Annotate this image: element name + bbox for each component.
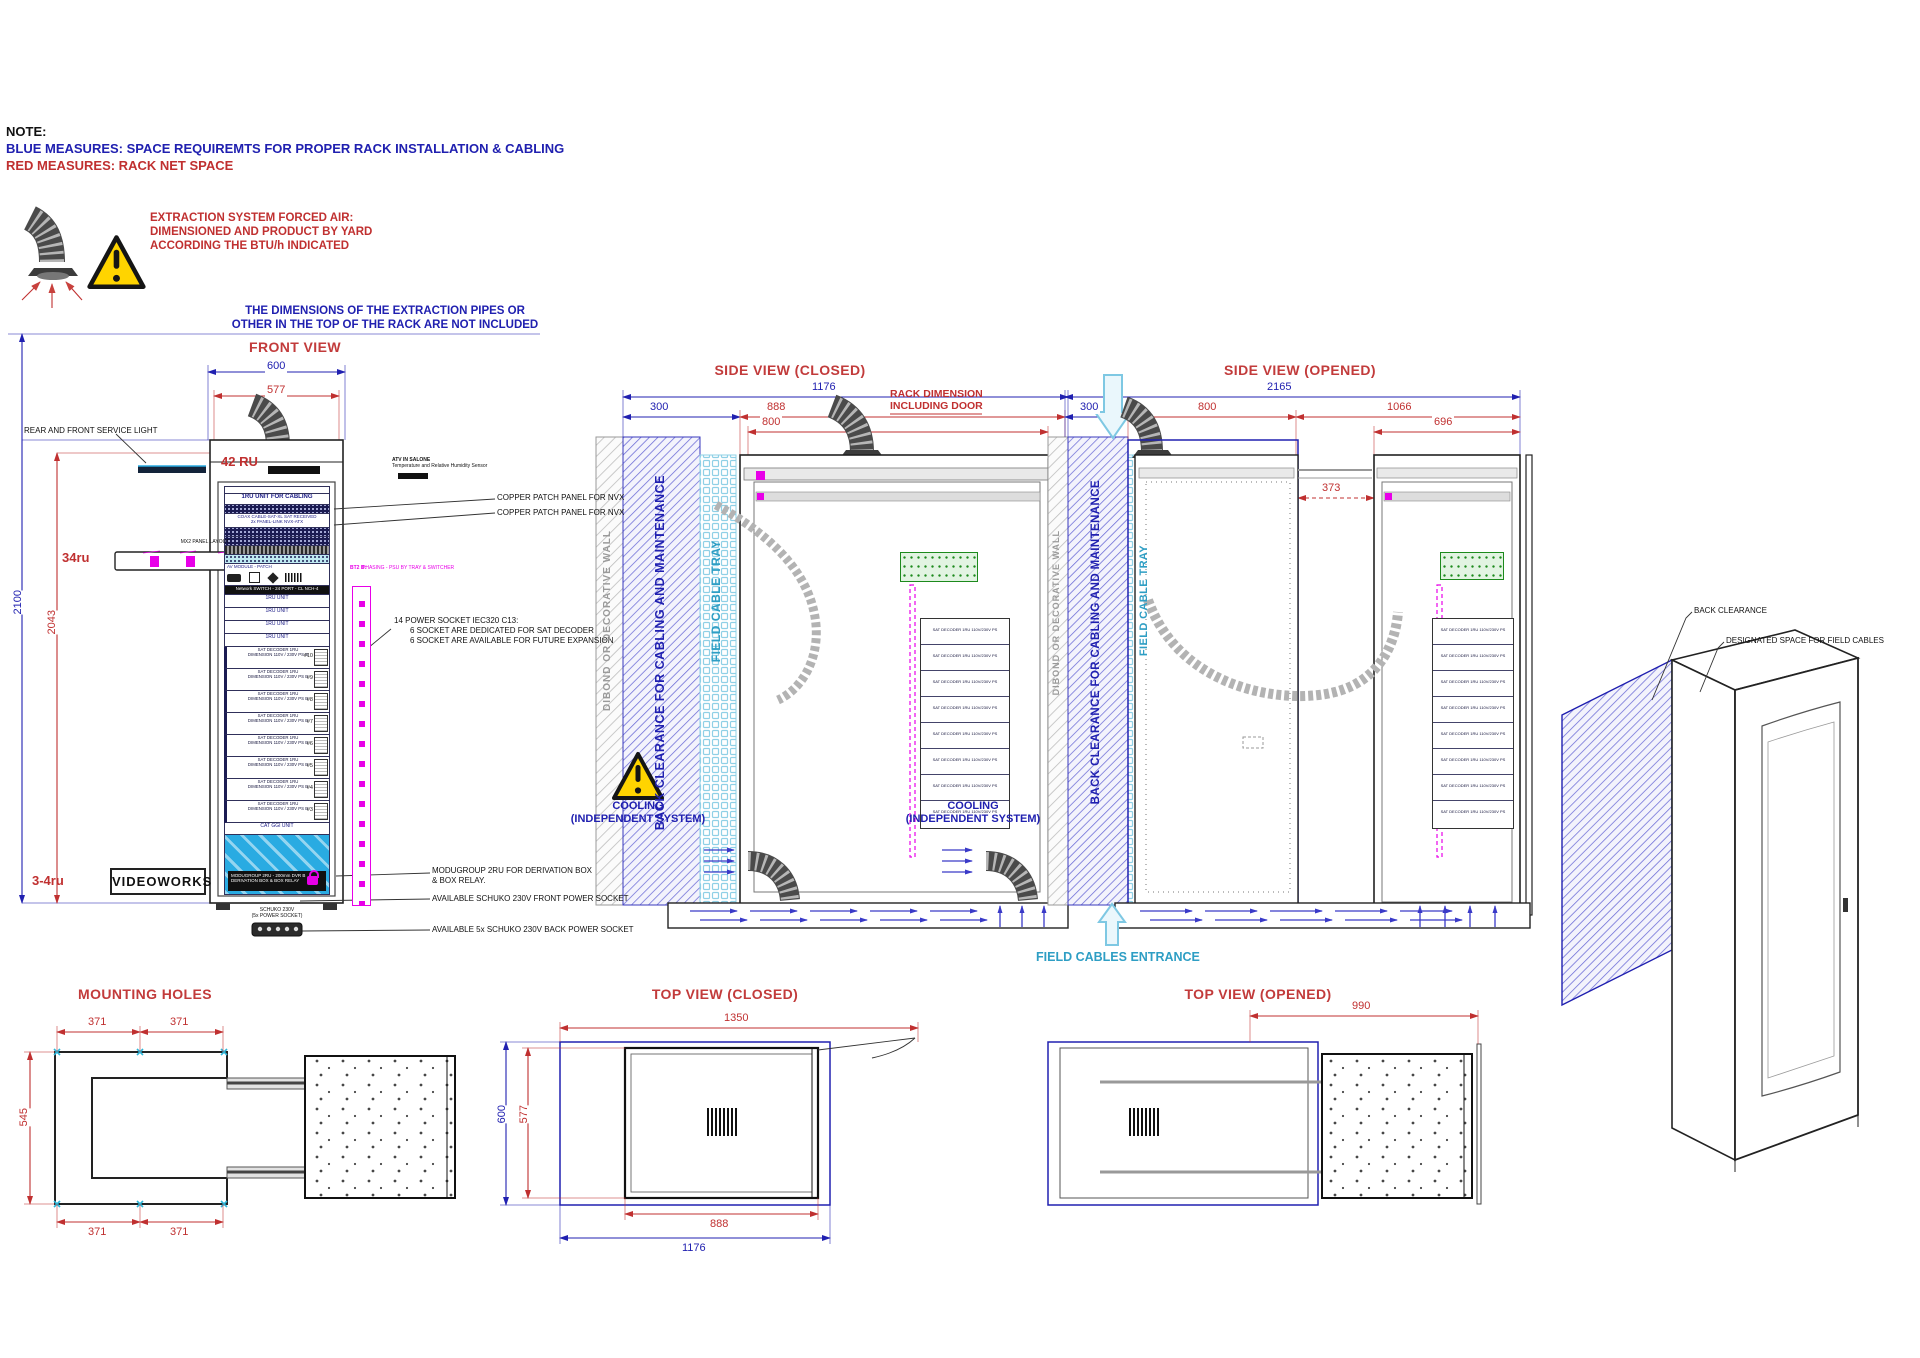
rack-row-patch-panel: [224, 528, 330, 537]
iso-designated-space-label: DESIGNATED SPACE FOR FIELD CABLES: [1726, 636, 1884, 645]
rack-row-coax-label: COAX CABLE-SAT-XL SAT RECEIVED 2x PANEL-…: [224, 514, 330, 528]
rack-row-switch: Network SWITCH - 24 PORT - CL NCH-4: [224, 586, 330, 595]
decoder-side-box: [314, 759, 328, 776]
decoder-side-box: [314, 781, 328, 798]
front-ru34-label: 34ru: [62, 551, 89, 566]
side-closed-wall-label: DIBOND OR DECORATIVE WALL: [602, 530, 614, 711]
front-rack-interior: 1RU UNIT FOR CABLING COAX CABLE-SAT-XL S…: [224, 486, 330, 895]
top-opened-dim-990: 990: [1350, 1000, 1372, 1013]
field-cables-entrance-label: FIELD CABLES ENTRANCE: [1036, 950, 1200, 964]
mounting-dim-371-top-right: 371: [168, 1016, 190, 1029]
decoder-side-box: [314, 671, 328, 688]
side-closed-green-module: [900, 552, 978, 582]
top-closed-dim-888: 888: [708, 1218, 730, 1231]
lock-icon: [307, 876, 318, 885]
top-closed-dim-1350: 1350: [722, 1012, 750, 1025]
rack-dimension-note-line1: RACK DIMENSION: [890, 388, 983, 400]
top-closed-dim-1176: 1176: [680, 1242, 708, 1255]
power-socket-callout-line2: 6 SOCKET ARE DEDICATED FOR SAT DECODER: [410, 626, 594, 635]
note-blue-measures: BLUE MEASURES: SPACE REQUIREMTS FOR PROP…: [6, 142, 564, 157]
rack-row-sat-decoder: SAT DECODER 1RUDIMENSION 110V / 230V PS …: [224, 801, 330, 823]
decoder-side-box: [314, 693, 328, 710]
mounting-holes-title: MOUNTING HOLES: [60, 986, 230, 1002]
copper-patch-callout-1: COPPER PATCH PANEL FOR NVX: [497, 493, 624, 502]
rack-blank-row: [224, 486, 330, 494]
front-dim-2043: 2043: [44, 610, 61, 634]
rack-row-sat-decoder: SAT DECODER 1RUDIMENSION 110V / 230V PS …: [224, 735, 330, 757]
decoder-side-box: [314, 649, 328, 666]
rack-row-1ru: 1RU UNIT: [224, 634, 330, 647]
side-closed-dim-800: 800: [760, 416, 782, 429]
strip-label-line2: (5x POWER SOCKET): [240, 914, 314, 920]
front-ru42-label: 42 RU: [221, 455, 258, 470]
rack-row-vent-grille: [224, 546, 330, 555]
decoder-side-box: [314, 803, 328, 820]
side-opened-cooling-label2: (INDEPENDENT SYSTEM): [900, 813, 1046, 826]
side-opened-tray-label: FIELD CABLE TRAY: [1138, 545, 1151, 656]
mounting-dim-371-top-left: 371: [86, 1016, 108, 1029]
top-opened-graphics: [1048, 1010, 1481, 1205]
side-opened-dim-696: 696: [1432, 416, 1454, 429]
top-closed-graphics: [500, 1022, 918, 1244]
front-socket-callout: AVAILABLE SCHUKO 230V FRONT POWER SOCKET: [432, 894, 629, 903]
side-opened-title: SIDE VIEW (OPENED): [1210, 362, 1390, 378]
side-opened-cooling-label1: COOLING: [925, 800, 1021, 813]
side-closed-dim-888: 888: [765, 401, 787, 414]
rack-row-1ru: 1RU UNIT: [224, 595, 330, 608]
side-opened-dim-373: 373: [1320, 482, 1342, 495]
copper-patch-callout-2: COPPER PATCH PANEL FOR NVX: [497, 508, 624, 517]
front-dim-600: 600: [265, 360, 287, 373]
side-closed-dim-1176: 1176: [810, 381, 838, 394]
modugroup-box: MODUGROUP 2RU - 200mm DVR B DERIVATION B…: [228, 871, 326, 891]
mounting-dim-371-bottom-left: 371: [86, 1226, 108, 1239]
note-title: NOTE:: [6, 125, 46, 140]
rack-row-designated-panel: MODUGROUP 2RU - 200mm DVR B DERIVATION B…: [224, 835, 330, 895]
modugroup-callout-line1: MODUGROUP 2RU FOR DERIVATION BOX: [432, 866, 592, 875]
top-opened-title: TOP VIEW (OPENED): [1178, 986, 1338, 1002]
modugroup-callout-line2: & BOX RELAY.: [432, 876, 486, 885]
pipes-note-line2: OTHER IN THE TOP OF THE RACK ARE NOT INC…: [205, 319, 565, 332]
decoder-side-box: [314, 737, 328, 754]
rack-row-sat-decoder: SAT DECODER 1RUDIMENSION 110V / 230V PS …: [224, 779, 330, 801]
top-closed-dim-600: 600: [494, 1105, 511, 1123]
decoder-side-box: [314, 715, 328, 732]
warning-icon: [90, 237, 144, 286]
rack-row-patch-panel: [224, 505, 330, 514]
rack-row-sat-decoder: SAT DECODER 1RUDIMENSION 110V / 230V PS …: [224, 691, 330, 713]
back-socket-callout: AVAILABLE 5x SCHUKO 230V BACK POWER SOCK…: [432, 925, 634, 934]
rack-row-cat-unit: CAT GGI UNIT: [224, 823, 330, 835]
extraction-note-line1: EXTRACTION SYSTEM FORCED AIR:: [150, 212, 353, 225]
extraction-note-line2: DIMENSIONED AND PRODUCT BY YARD: [150, 226, 372, 239]
power-socket-callout-line3: 6 SOCKET ARE AVAILABLE FOR FUTURE EXPANS…: [410, 636, 613, 645]
connector-icon: [227, 574, 241, 582]
side-closed-cooling-label2: (INDEPENDENT SYSTEM): [565, 813, 711, 826]
side-opened-dim-300: 300: [1078, 401, 1100, 414]
barcode-icon: [285, 573, 303, 582]
front-pdu-strip: [352, 586, 371, 906]
top-closed-dim-577: 577: [516, 1105, 533, 1123]
rack-row-cabling: 1RU UNIT FOR CABLING: [224, 494, 330, 505]
side-closed-tray-label: FIELD CABLE TRAY: [710, 540, 724, 662]
mounting-holes-graphics: [24, 1026, 455, 1228]
rack-row-av-module: AV MODULE - PATCH: [224, 564, 330, 586]
side-closed-cooling-label1: COOLING: [590, 800, 686, 813]
engineering-drawing-sheet: NOTE: BLUE MEASURES: SPACE REQUIREMTS FO…: [0, 0, 1920, 1358]
front-dim-577: 577: [265, 384, 287, 397]
power-socket-callout-title: 14 POWER SOCKET IEC320 C13:: [394, 616, 518, 625]
rack-dimension-note-line2: INCLUDING DOOR: [890, 400, 983, 412]
side-opened-clearance-label: BACK CLEARANCE FOR CABLING AND MAINTENAN…: [1090, 480, 1103, 804]
front-sensor-note-line2: Temperature and Relative Humidity Sensor: [392, 464, 487, 470]
side-opened-wall-label: DIBOND OR DECORATIVE WALL: [1051, 530, 1061, 695]
front-view-title: FRONT VIEW: [215, 339, 375, 355]
note-red-measures: RED MEASURES: RACK NET SPACE: [6, 159, 233, 174]
side-opened-dim-2165: 2165: [1265, 381, 1293, 394]
rack-row-1ru: 1RU UNIT: [224, 621, 330, 634]
side-closed-decoder-stack: SAT DECODER 1RU 110V/230V PS SAT DECODER…: [920, 618, 1010, 829]
side-closed-dim-300: 300: [648, 401, 670, 414]
extraction-note-line3: ACCORDING THE BTU/h INDICATED: [150, 240, 349, 253]
mounting-dim-371-bottom-right: 371: [168, 1226, 190, 1239]
extraction-duct-icon: [22, 218, 82, 308]
videoworks-logo: VIDEOWORKS: [110, 868, 206, 895]
connector-icon: [249, 572, 260, 583]
pipes-note-line1: THE DIMENSIONS OF THE EXTRACTION PIPES O…: [205, 305, 565, 318]
top-closed-title: TOP VIEW (CLOSED): [645, 986, 805, 1002]
rack-row-sat-decoder: SAT DECODER 1RUDIMENSION 110V / 230V PS …: [224, 713, 330, 735]
front-ru34-bottom-label: 3-4ru: [32, 874, 64, 889]
side-opened-green-module: [1440, 552, 1504, 580]
front-service-light-label: REAR AND FRONT SERVICE LIGHT: [24, 426, 158, 435]
side-opened-dim-1066: 1066: [1385, 401, 1413, 414]
rack-row-sat-decoder: SAT DECODER 1RUDIMENSION 110V / 230V PS …: [224, 647, 330, 669]
rack-row-sat-decoder: SAT DECODER 1RUDIMENSION 110V / 230V PS …: [224, 757, 330, 779]
rack-row-1ru: 1RU UNIT: [224, 608, 330, 621]
front-panel34-label: MX2 PANEL LAYOUT: [150, 540, 260, 546]
front-pdu-label2: PHASING - PSU BY TRAY & SWITCHER: [362, 566, 454, 572]
side-closed-title: SIDE VIEW (CLOSED): [700, 362, 880, 378]
iso-view-graphics: [1562, 612, 1858, 1172]
side-closed-clearance-label: BACK CLEARANCE FOR CABLING AND MAINTENAN…: [653, 475, 667, 830]
rack-row-sat-decoder: SAT DECODER 1RUDIMENSION 110V / 230V PS …: [224, 669, 330, 691]
connector-icon: [267, 572, 278, 583]
rack-row-fiber-panel: [224, 555, 330, 564]
mounting-dim-545: 545: [16, 1108, 33, 1126]
front-dim-2100: 2100: [10, 590, 27, 614]
side-opened-dim-800: 800: [1196, 401, 1218, 414]
side-opened-decoder-stack: SAT DECODER 1RU 110V/230V PS SAT DECODER…: [1432, 618, 1514, 829]
iso-back-clearance-label: BACK CLEARANCE: [1694, 606, 1767, 615]
